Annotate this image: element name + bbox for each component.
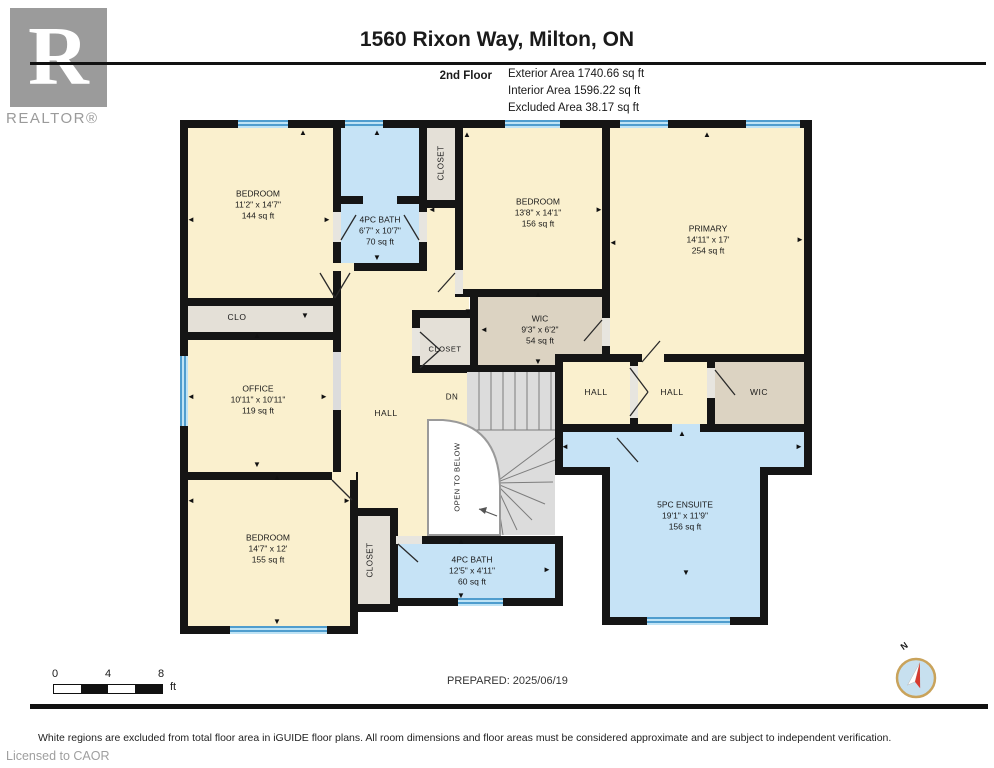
scale-segment: [81, 685, 108, 693]
dim-arrow-icon: ▲: [703, 131, 711, 139]
dim-arrow-icon: ◄: [609, 239, 617, 247]
label-bath-top: 4PC BATH6'7" x 10'7"70 sq ft: [359, 214, 401, 247]
scale-unit: ft: [170, 681, 176, 693]
door-opening: [642, 354, 664, 362]
footer-divider: [30, 704, 988, 709]
window: [505, 120, 560, 128]
bath-top-divider-wall: [333, 196, 363, 204]
dim-arrow-icon: ▲: [534, 291, 542, 299]
license-text: Licensed to CAOR: [6, 749, 110, 763]
dim-arrow-icon: ►: [795, 443, 803, 451]
dim-arrow-icon: ◄: [187, 216, 195, 224]
corridor-bottom-wall: [555, 467, 610, 475]
label-bath-bottom: 4PC BATH12'5" x 4'11"60 sq ft: [449, 554, 495, 587]
door-opening: [707, 368, 715, 398]
dim-arrow-icon: ◄: [428, 206, 436, 214]
disclaimer-text: White regions are excluded from total fl…: [38, 732, 891, 744]
exterior-area-stat: Exterior Area 1740.66 sq ft: [508, 68, 644, 80]
label-office: OFFICE10'11" x 10'11"119 sq ft: [231, 383, 286, 416]
interior-area-stat: Interior Area 1596.22 sq ft: [508, 85, 640, 97]
door-opening: [318, 263, 354, 271]
label-closet-top: CLOSET: [437, 145, 446, 180]
label-hall-main: HALL: [374, 408, 397, 418]
dim-arrow-icon: ▼: [273, 618, 281, 626]
scale-bar: [53, 684, 163, 694]
header-divider: [30, 62, 986, 65]
scale-segment: [108, 685, 135, 693]
window: [647, 617, 730, 625]
page-title: 1560 Rixon Way, Milton, ON: [360, 28, 634, 52]
label-open-to-below: OPEN TO BELOW: [453, 442, 462, 511]
realtor-logo-icon: R: [10, 8, 107, 107]
scale-segment: [54, 685, 81, 693]
label-closet-bottom: CLOSET: [366, 542, 375, 577]
dim-arrow-icon: ▼: [534, 358, 542, 366]
dim-arrow-icon: ▼: [457, 592, 465, 600]
dim-arrow-icon: ►: [323, 216, 331, 224]
scale-tick-0: 0: [52, 668, 58, 680]
dim-arrow-icon: ►: [543, 566, 551, 574]
door-opening: [396, 536, 422, 544]
prepared-date: PREPARED: 2025/06/19: [447, 675, 568, 687]
window: [620, 120, 668, 128]
label-primary: PRIMARY14'11" x 17'254 sq ft: [687, 223, 730, 256]
dim-arrow-icon: ▲: [299, 129, 307, 137]
cased-opening: [333, 352, 341, 410]
window: [238, 120, 288, 128]
door-opening: [333, 212, 341, 242]
label-bedroom-bottom-left: BEDROOM14'7" x 12'155 sq ft: [246, 532, 290, 565]
door-opening: [672, 424, 700, 432]
compass-icon: [890, 640, 945, 710]
window: [746, 120, 800, 128]
label-clo: CLO: [228, 312, 247, 322]
dim-arrow-icon: ▲: [273, 474, 281, 482]
door-opening: [412, 328, 420, 356]
window: [345, 120, 383, 128]
dim-arrow-icon: ▲: [678, 430, 686, 438]
door-opening: [332, 472, 356, 480]
label-bedroom-middle: BEDROOM13'8" x 14'1"156 sq ft: [515, 196, 562, 229]
label-wic-center: WIC9'3" x 6'2"54 sq ft: [521, 313, 558, 346]
realtor-logo-letter: R: [10, 8, 107, 105]
dim-arrow-icon: ►: [320, 393, 328, 401]
dim-arrow-icon: ►: [343, 497, 351, 505]
dim-arrow-icon: ▲: [373, 129, 381, 137]
staircase: [425, 368, 555, 540]
window: [180, 356, 188, 426]
label-hall-2: HALL: [660, 387, 683, 397]
dim-arrow-icon: ▼: [464, 308, 472, 316]
dim-arrow-icon: ▼: [682, 569, 690, 577]
door-opening: [630, 366, 638, 418]
realtor-logo-text: REALTOR®: [6, 110, 99, 127]
label-bedroom-top-left: BEDROOM11'2" x 14'7"144 sq ft: [235, 188, 281, 221]
dim-arrow-icon: ▼: [253, 461, 261, 469]
dim-arrow-icon: ►: [796, 236, 804, 244]
corridor-bottom-wall: [760, 467, 812, 475]
label-ensuite: 5PC ENSUITE19'1" x 11'9"156 sq ft: [657, 499, 713, 532]
dim-arrow-icon: ▼: [373, 254, 381, 262]
hall-upper-fill: [425, 206, 457, 276]
label-wic-right: WIC: [750, 387, 768, 397]
dim-arrow-icon: ◄: [561, 443, 569, 451]
room-closet-center: [412, 310, 478, 373]
dim-arrow-icon: ▲: [253, 332, 261, 340]
room-ensuite-main: [602, 467, 768, 625]
dim-arrow-icon: ▼: [301, 312, 309, 320]
floor-label: 2nd Floor: [380, 70, 492, 82]
dim-arrow-icon: ▲: [463, 131, 471, 139]
floorplan-page: R REALTOR® 1560 Rixon Way, Milton, ON 2n…: [0, 0, 994, 768]
label-closet-center: CLOSET: [428, 345, 461, 354]
bath-top-divider-wall: [397, 196, 427, 204]
dim-arrow-icon: ►: [595, 206, 603, 214]
door-opening: [419, 212, 427, 242]
dim-arrow-icon: ◄: [187, 497, 195, 505]
excluded-area-stat: Excluded Area 38.17 sq ft: [508, 102, 639, 114]
scale-tick-8: 8: [158, 668, 164, 680]
dim-arrow-icon: ▲: [457, 538, 465, 546]
dim-arrow-icon: ◄: [480, 326, 488, 334]
door-opening: [455, 270, 463, 294]
label-hall-1: HALL: [584, 387, 607, 397]
door-opening: [602, 318, 610, 346]
scale-segment: [135, 685, 162, 693]
scale-tick-4: 4: [105, 668, 111, 680]
label-dn: DN: [446, 393, 459, 402]
window: [230, 626, 327, 634]
dim-arrow-icon: ◄: [187, 393, 195, 401]
